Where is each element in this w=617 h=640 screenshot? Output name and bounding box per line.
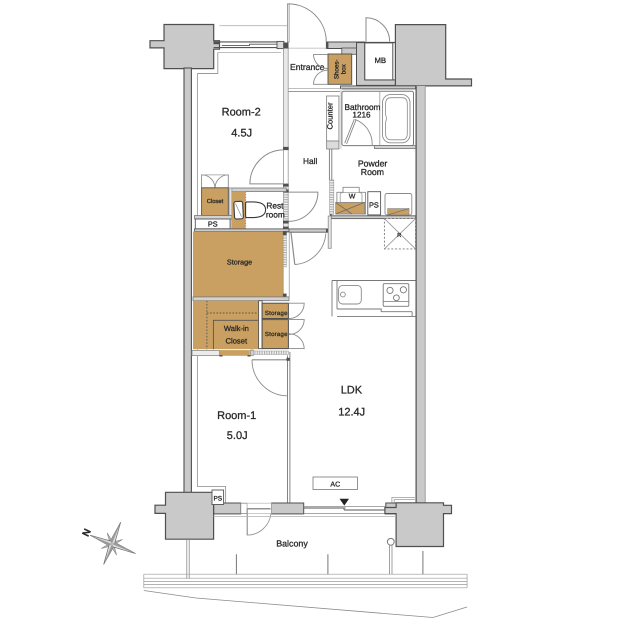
svg-text:LDK: LDK: [341, 384, 363, 396]
svg-text:Shoes-: Shoes-: [334, 59, 341, 79]
svg-text:Room-2: Room-2: [222, 107, 261, 119]
svg-text:PS: PS: [213, 496, 222, 503]
svg-text:Storage: Storage: [265, 331, 288, 338]
svg-text:Balcony: Balcony: [276, 538, 308, 548]
svg-text:Counter: Counter: [325, 102, 334, 129]
svg-text:12.4J: 12.4J: [338, 407, 365, 419]
svg-text:Closet: Closet: [207, 198, 224, 205]
svg-text:5.0J: 5.0J: [227, 430, 248, 442]
svg-text:Room-1: Room-1: [217, 410, 256, 422]
svg-text:Storage: Storage: [265, 310, 288, 317]
svg-text:1216: 1216: [352, 110, 371, 119]
svg-text:Storage: Storage: [227, 258, 252, 267]
svg-text:Room: Room: [361, 167, 384, 177]
svg-text:Hall: Hall: [303, 156, 317, 166]
svg-text:W: W: [349, 194, 356, 201]
svg-text:PS: PS: [369, 201, 379, 210]
svg-text:room: room: [266, 210, 285, 220]
svg-text:Entrance: Entrance: [290, 62, 325, 72]
svg-text:PS: PS: [208, 219, 218, 228]
svg-text:Closet: Closet: [226, 337, 248, 346]
svg-text:box: box: [341, 63, 348, 74]
svg-text:MB: MB: [374, 56, 386, 65]
svg-text:R: R: [397, 233, 401, 239]
svg-text:Walk-in: Walk-in: [224, 324, 249, 333]
svg-text:4.5J: 4.5J: [231, 128, 252, 140]
svg-text:AC: AC: [330, 482, 340, 489]
